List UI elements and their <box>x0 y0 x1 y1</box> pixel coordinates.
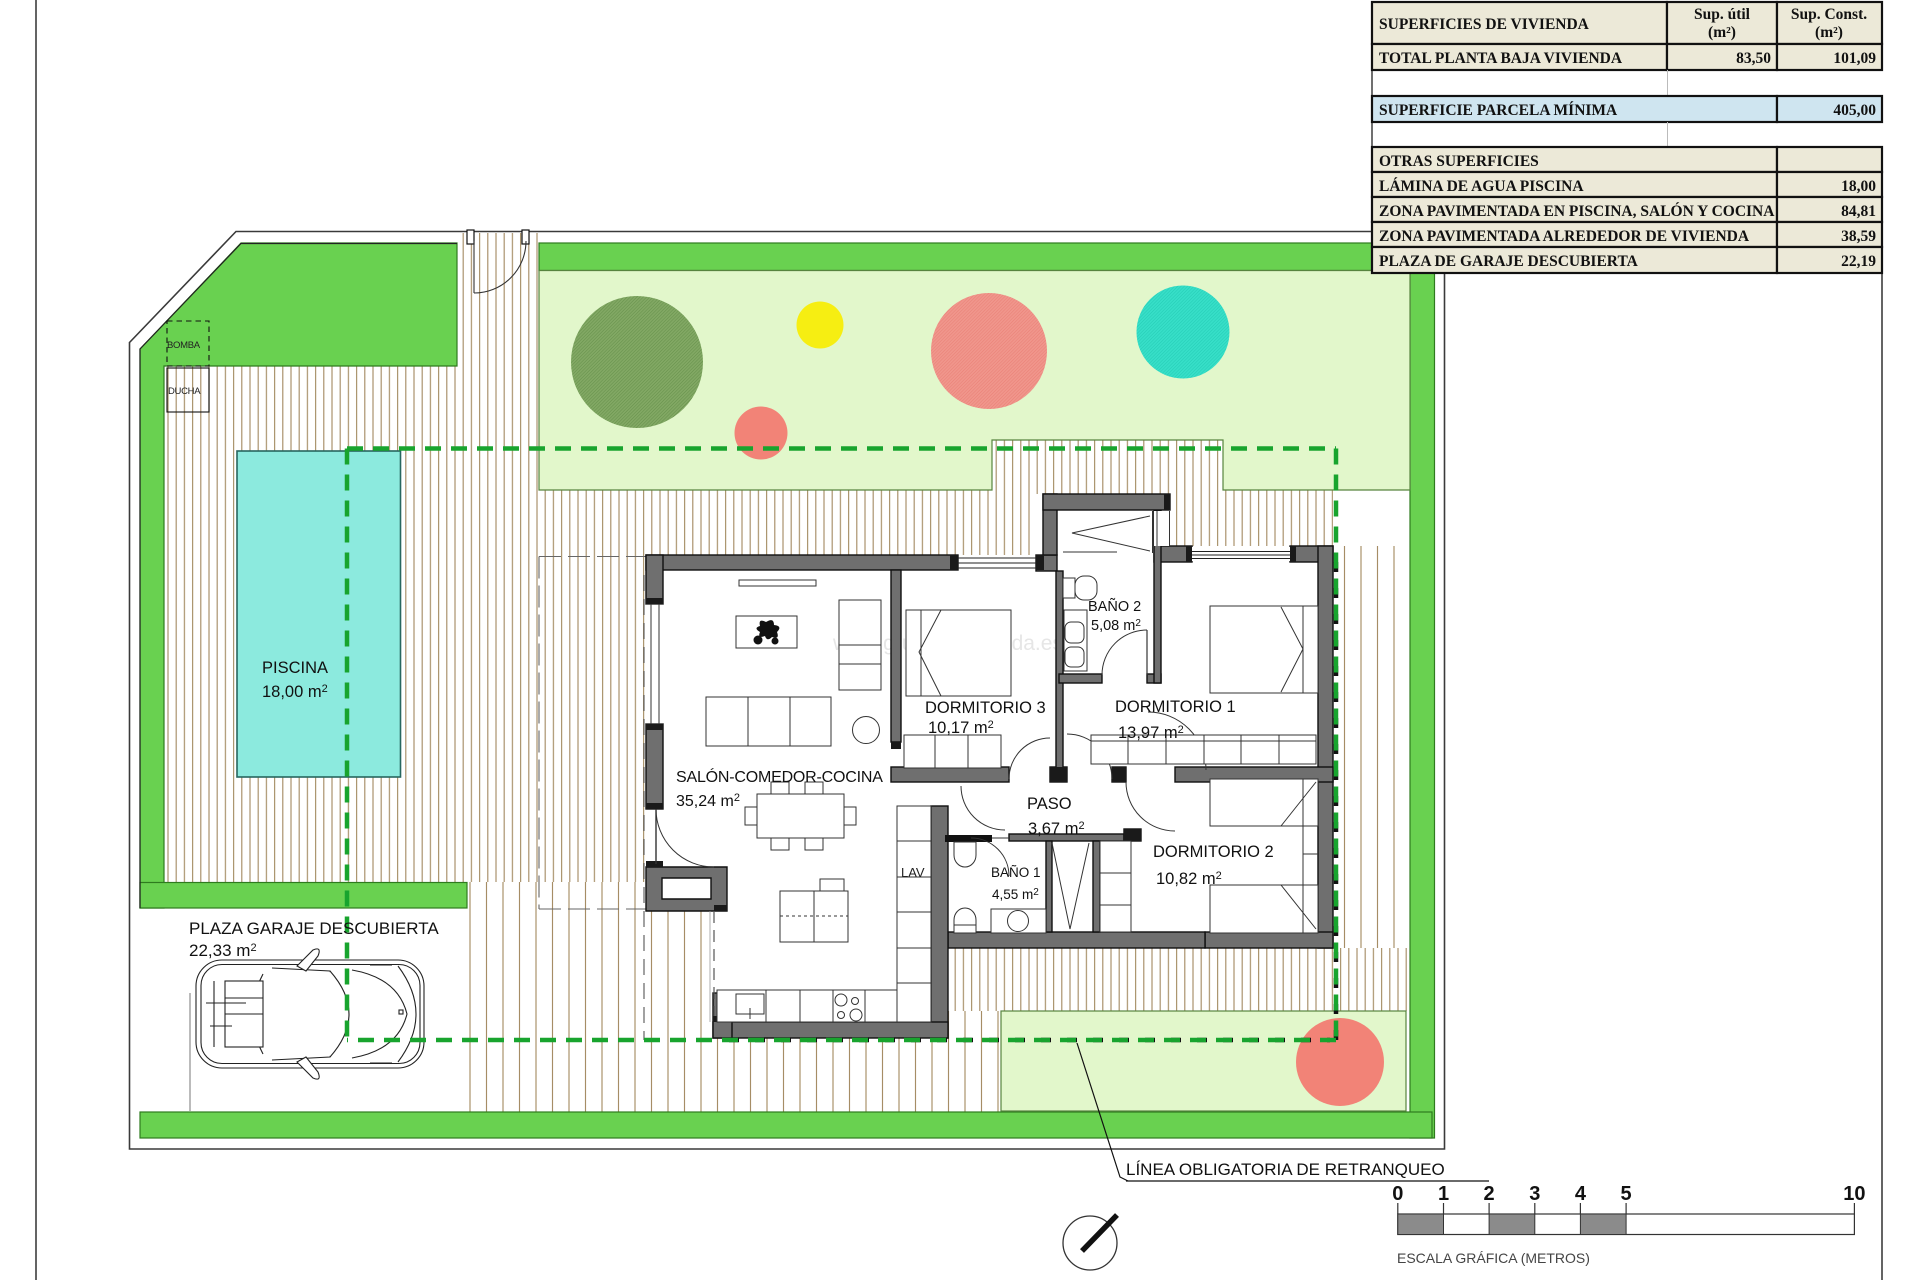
svg-text:2: 2 <box>1484 1183 1495 1205</box>
svg-text:PLAZA DE GARAJE DESCUBIERTA: PLAZA DE GARAJE DESCUBIERTA <box>1379 253 1639 270</box>
svg-text:DUCHA: DUCHA <box>168 386 201 397</box>
svg-text:BAÑO 1: BAÑO 1 <box>991 865 1041 880</box>
svg-text:22,33 m2: 22,33 m2 <box>189 941 257 960</box>
svg-text:SUPERFICIE PARCELA MÍNIMA: SUPERFICIE PARCELA MÍNIMA <box>1379 102 1618 119</box>
svg-text:35,24 m2: 35,24 m2 <box>676 792 740 810</box>
svg-text:DORMITORIO 2: DORMITORIO 2 <box>1153 843 1274 861</box>
svg-text:0: 0 <box>1392 1183 1403 1205</box>
svg-text:OTRAS SUPERFICIES: OTRAS SUPERFICIES <box>1379 153 1539 170</box>
svg-text:405,00: 405,00 <box>1833 102 1876 119</box>
svg-text:PASO: PASO <box>1027 795 1072 813</box>
svg-text:3,67 m2: 3,67 m2 <box>1028 820 1085 838</box>
svg-text:BOMBA: BOMBA <box>167 340 201 351</box>
svg-text:1: 1 <box>1438 1183 1449 1205</box>
svg-text:84,81: 84,81 <box>1841 203 1876 220</box>
svg-text:DORMITORIO 3: DORMITORIO 3 <box>925 699 1046 717</box>
svg-text:TOTAL PLANTA BAJA VIVIENDA: TOTAL PLANTA BAJA VIVIENDA <box>1379 50 1623 67</box>
svg-text:PISCINA: PISCINA <box>262 659 328 677</box>
svg-text:ZONA PAVIMENTADA EN PISCINA, S: ZONA PAVIMENTADA EN PISCINA, SALÓN Y COC… <box>1379 203 1775 220</box>
svg-text:5: 5 <box>1621 1183 1632 1205</box>
svg-text:BAÑO 2: BAÑO 2 <box>1088 598 1141 615</box>
svg-text:PLAZA GARAJE DESCUBIERTA: PLAZA GARAJE DESCUBIERTA <box>189 919 439 938</box>
svg-text:101,09: 101,09 <box>1833 50 1876 67</box>
svg-text:83,50: 83,50 <box>1736 50 1771 67</box>
svg-text:SUPERFICIES DE VIVIENDA: SUPERFICIES DE VIVIENDA <box>1379 16 1590 33</box>
svg-text:DORMITORIO 1: DORMITORIO 1 <box>1115 698 1236 716</box>
svg-text:22,19: 22,19 <box>1841 253 1876 270</box>
svg-text:(m²): (m²) <box>1815 24 1843 41</box>
svg-text:(m²): (m²) <box>1708 24 1736 41</box>
svg-text:5,08 m2: 5,08 m2 <box>1091 618 1141 634</box>
svg-text:10,17 m2: 10,17 m2 <box>928 719 994 737</box>
svg-text:Sup. útil: Sup. útil <box>1694 6 1751 23</box>
svg-text:3: 3 <box>1529 1183 1540 1205</box>
svg-text:38,59: 38,59 <box>1841 228 1876 245</box>
svg-text:10,82 m2: 10,82 m2 <box>1156 870 1222 888</box>
svg-text:LÍNEA OBLIGATORIA DE RETRANQUE: LÍNEA OBLIGATORIA DE RETRANQUEO <box>1126 1160 1445 1179</box>
svg-text:18,00: 18,00 <box>1841 178 1876 195</box>
svg-text:LÁMINA DE AGUA PISCINA: LÁMINA DE AGUA PISCINA <box>1379 178 1584 195</box>
svg-text:4,55 m2: 4,55 m2 <box>992 887 1039 902</box>
svg-text:ESCALA GRÁFICA (METROS): ESCALA GRÁFICA (METROS) <box>1397 1250 1590 1266</box>
svg-text:LAV: LAV <box>901 865 925 880</box>
svg-text:ZONA PAVIMENTADA ALREDEDOR DE: ZONA PAVIMENTADA ALREDEDOR DE VIVIENDA <box>1379 228 1750 245</box>
svg-text:Sup. Const.: Sup. Const. <box>1791 6 1867 23</box>
svg-text:18,00 m2: 18,00 m2 <box>262 683 328 701</box>
svg-text:SALÓN-COMEDOR-COCINA: SALÓN-COMEDOR-COCINA <box>676 767 883 786</box>
svg-text:13,97 m2: 13,97 m2 <box>1118 724 1184 742</box>
svg-text:4: 4 <box>1575 1183 1587 1205</box>
svg-text:10: 10 <box>1843 1183 1865 1205</box>
